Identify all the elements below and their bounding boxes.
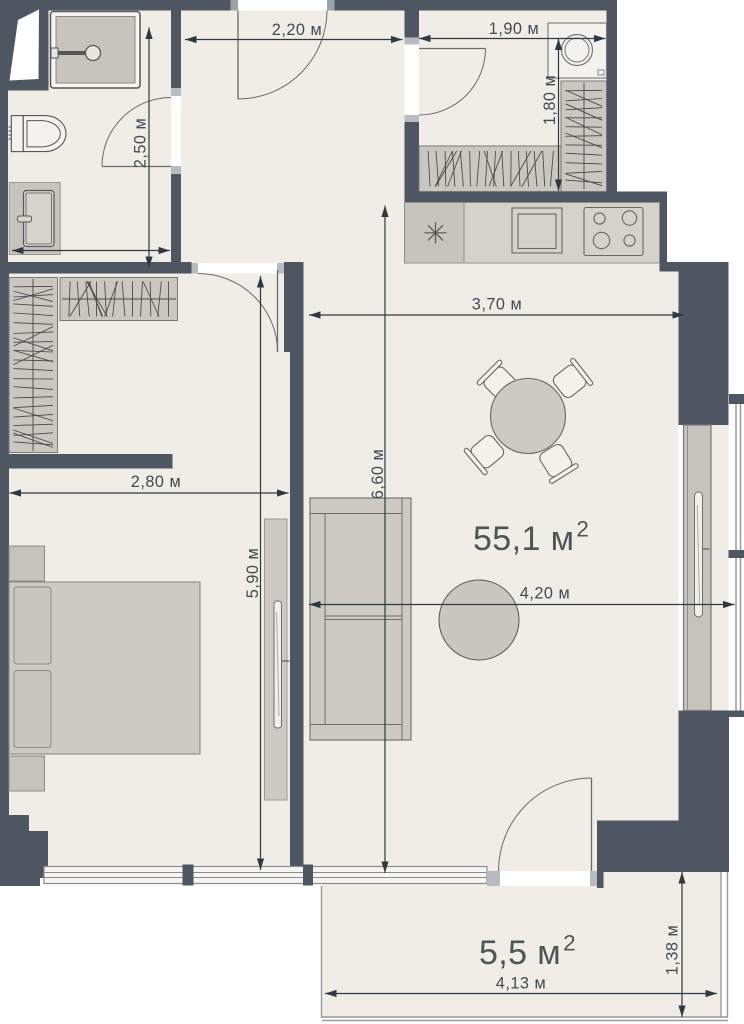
svg-text:4,13 м: 4,13 м (496, 975, 546, 993)
svg-text:1,38 м: 1,38 м (664, 925, 682, 975)
svg-text:2,50 м: 2,50 м (132, 118, 150, 168)
svg-text:55,1 м2: 55,1 м2 (473, 517, 589, 559)
svg-text:1,80 м: 1,80 м (541, 75, 559, 125)
svg-text:4,20 м: 4,20 м (520, 585, 570, 603)
svg-text:1,90 м: 1,90 м (489, 20, 539, 38)
svg-text:3,70 м: 3,70 м (472, 296, 522, 314)
svg-text:2,80 м: 2,80 м (131, 473, 181, 491)
svg-text:5,90 м: 5,90 м (244, 548, 262, 598)
svg-text:2,20 м: 2,20 м (272, 21, 322, 39)
svg-text:6,60 м: 6,60 м (369, 449, 387, 499)
